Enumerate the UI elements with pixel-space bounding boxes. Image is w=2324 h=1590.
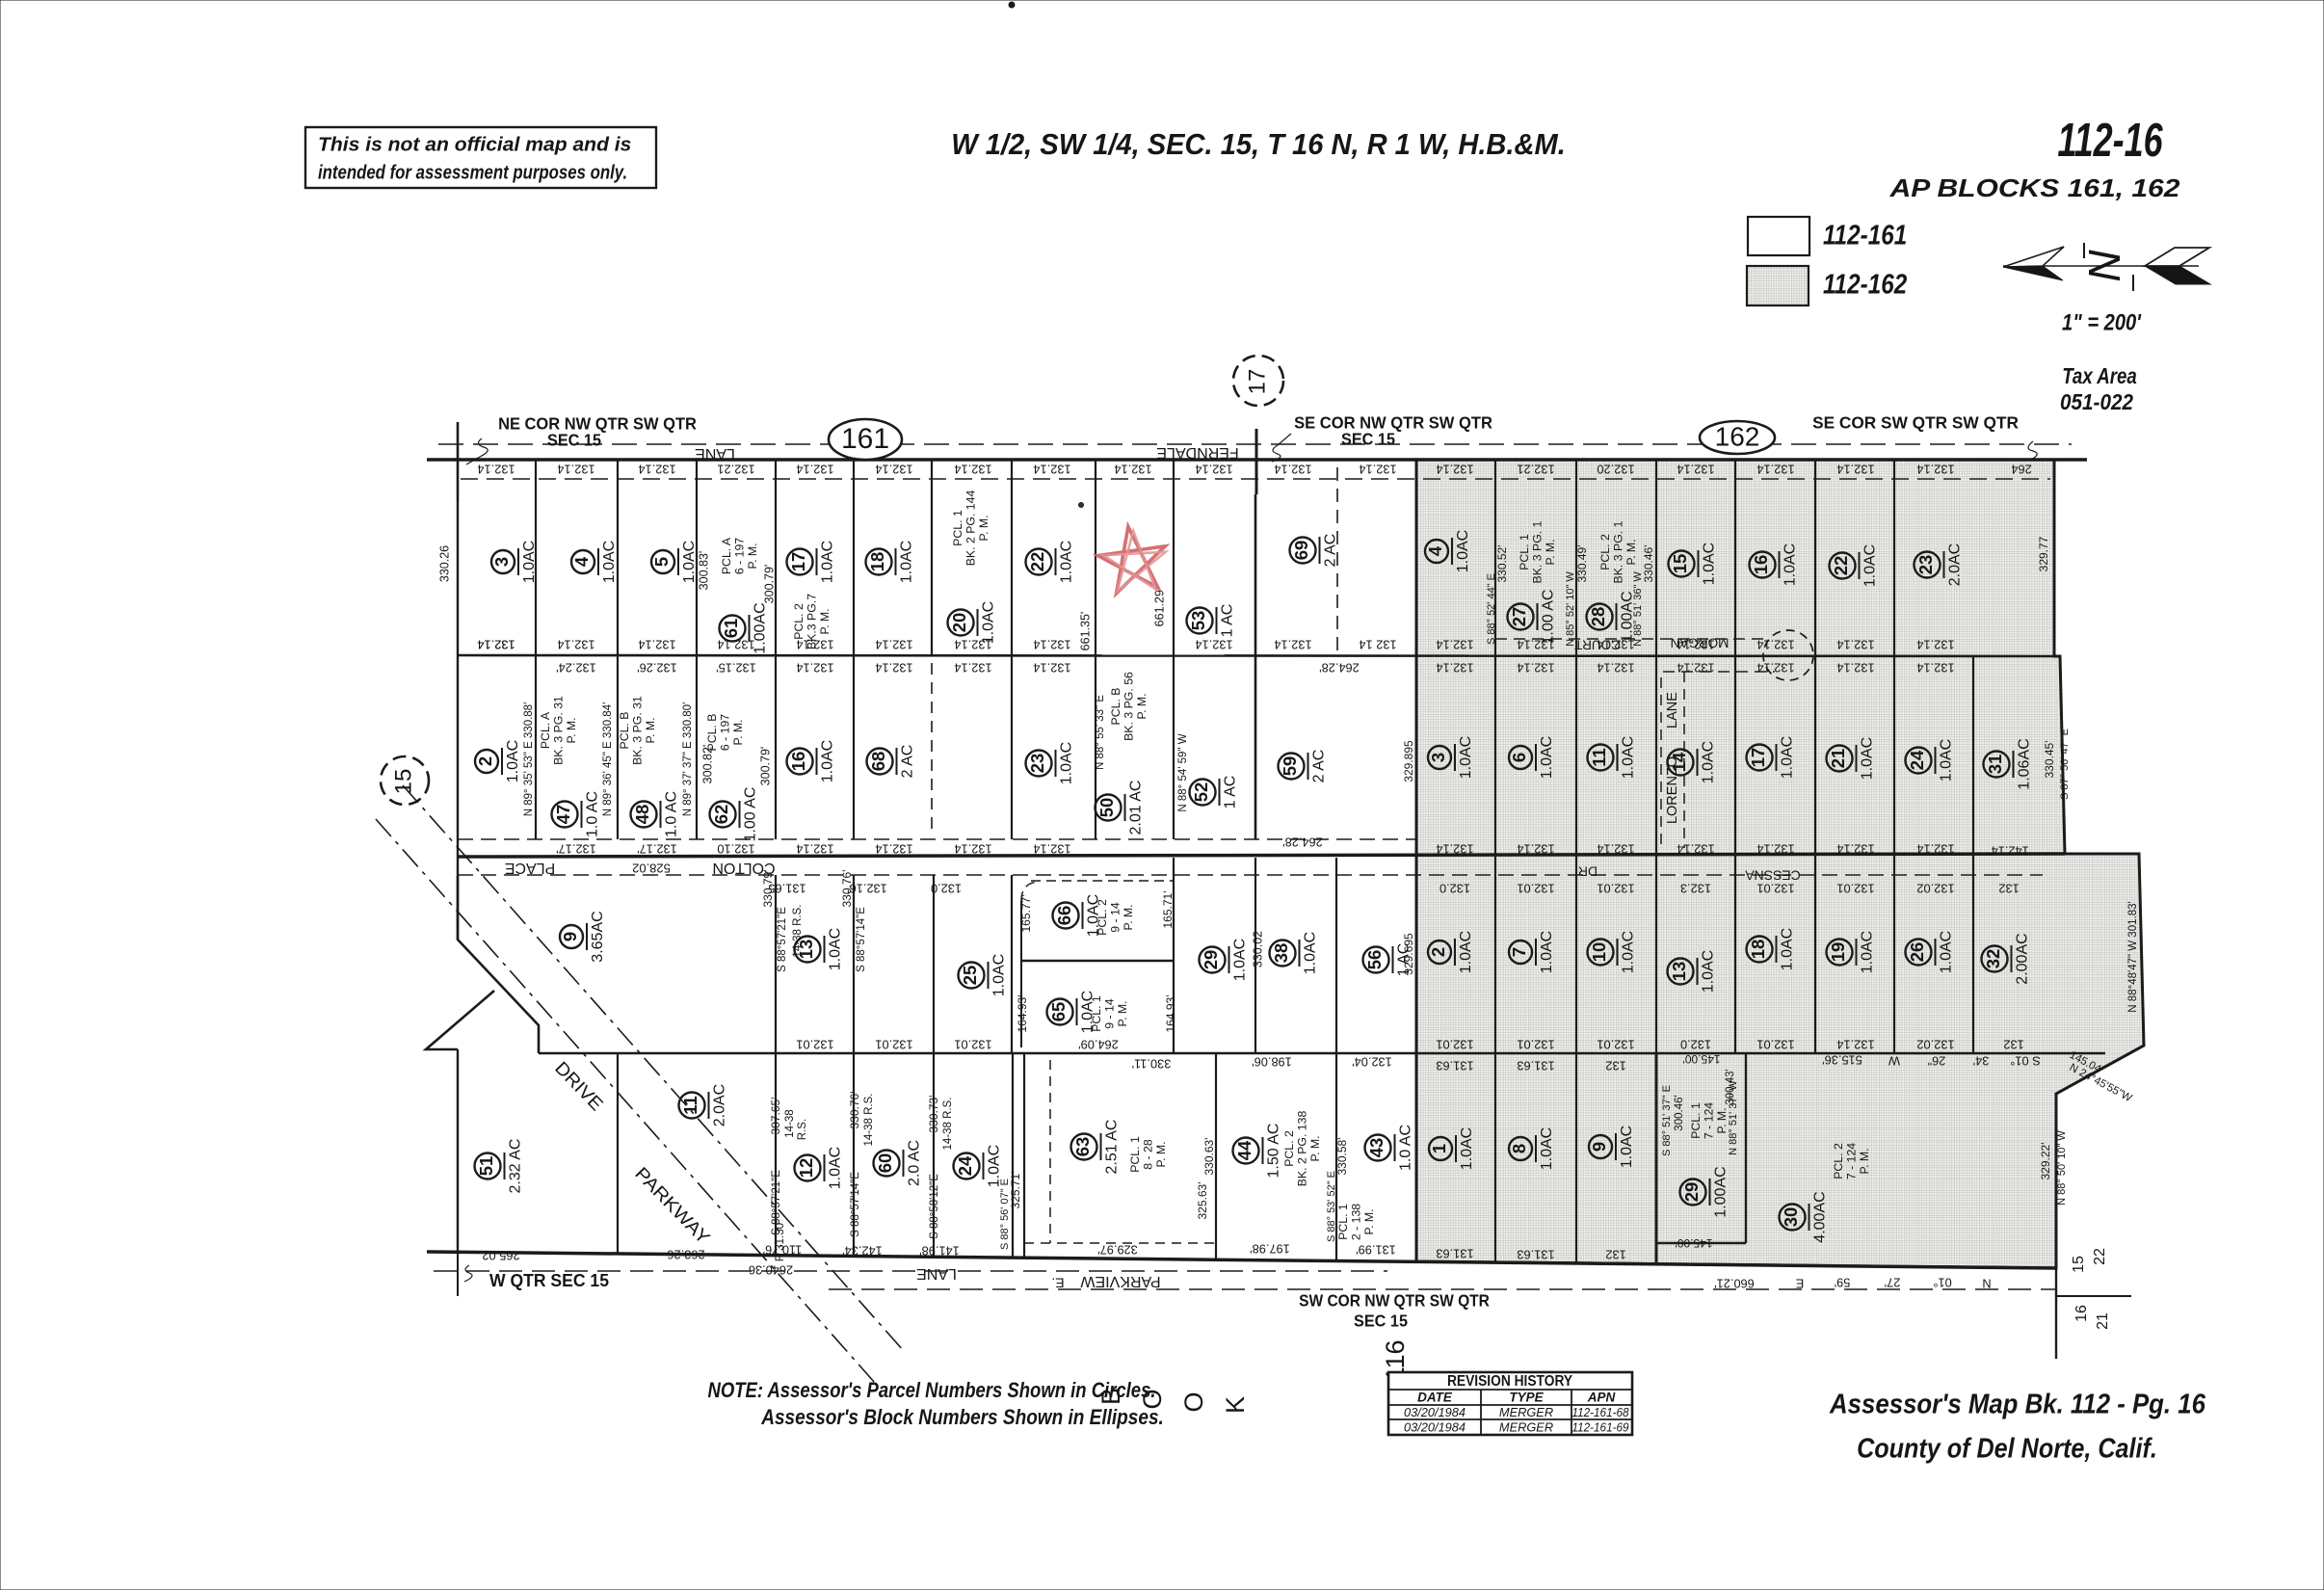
svg-text:330.58': 330.58' — [1335, 1138, 1349, 1176]
svg-text:2.32 AC: 2.32 AC — [508, 1139, 524, 1194]
svg-text:132.14: 132.14 — [1916, 661, 1954, 676]
svg-text:12: 12 — [796, 1158, 816, 1179]
svg-text:329.895: 329.895 — [1402, 740, 1415, 782]
svg-text:27': 27' — [1885, 1276, 1901, 1290]
svg-text:S 88° 56' 07" E: S 88° 56' 07" E — [999, 1179, 1011, 1250]
svg-text:132.14: 132.14 — [954, 463, 991, 477]
svg-text:132.14: 132.14 — [1195, 463, 1232, 477]
svg-text:47: 47 — [553, 805, 573, 825]
svg-text:1.00 AC: 1.00 AC — [1541, 590, 1557, 645]
svg-text:2.01 AC: 2.01 AC — [1128, 781, 1145, 835]
svg-text:325.71': 325.71' — [1009, 1172, 1022, 1209]
svg-text:515.36': 515.36' — [1822, 1053, 1862, 1068]
svg-text:County of Del Norte, Calif.: County of Del Norte, Calif. — [1857, 1432, 2157, 1464]
svg-text:132.10: 132.10 — [717, 842, 754, 857]
svg-text:1.0AC: 1.0AC — [1621, 931, 1637, 973]
svg-text:56: 56 — [1364, 950, 1385, 970]
svg-text:264.28': 264.28' — [1319, 661, 1360, 676]
svg-text:132.14: 132.14 — [1836, 463, 1874, 477]
svg-text:32: 32 — [1983, 949, 2003, 969]
svg-text:264.09': 264.09' — [1078, 1038, 1119, 1052]
svg-text:9: 9 — [1589, 1142, 1609, 1152]
svg-text:132.0: 132.0 — [1439, 882, 1470, 896]
svg-text:145.00': 145.00' — [1676, 1236, 1713, 1250]
svg-text:53: 53 — [1188, 611, 1208, 631]
svg-text:132.14: 132.14 — [796, 842, 833, 857]
svg-text:38: 38 — [1271, 943, 1291, 964]
svg-text:15: 15 — [2071, 1256, 2087, 1273]
svg-text:132.14: 132.14 — [1916, 638, 1954, 652]
svg-text:132.14: 132.14 — [875, 463, 912, 477]
svg-text:60: 60 — [875, 1153, 895, 1174]
svg-text:P. M.: P. M. — [1858, 1148, 1871, 1174]
svg-text:3: 3 — [491, 557, 512, 567]
svg-text:N 88° 55' 33" E: N 88° 55' 33" E — [1095, 695, 1106, 770]
svg-text:P. M.: P. M. — [1122, 904, 1135, 930]
svg-text:132.14: 132.14 — [1033, 463, 1070, 477]
svg-text:26: 26 — [1907, 942, 1927, 963]
svg-text:1.0AC: 1.0AC — [1059, 541, 1075, 583]
svg-text:132.17': 132.17' — [556, 842, 596, 857]
svg-text:59: 59 — [1280, 756, 1300, 777]
svg-text:BK. 2 PG. 144: BK. 2 PG. 144 — [964, 490, 977, 567]
svg-text:6 - 197: 6 - 197 — [718, 714, 731, 751]
svg-text:2: 2 — [1428, 947, 1448, 957]
svg-text:2.0 AC: 2.0 AC — [907, 1140, 923, 1186]
svg-text:P. M.: P. M. — [818, 608, 832, 634]
svg-text:132.14: 132.14 — [1359, 463, 1396, 477]
svg-text:132.14: 132.14 — [477, 463, 515, 477]
svg-text:17: 17 — [788, 552, 808, 572]
svg-text:132.14: 132.14 — [1836, 638, 1874, 652]
svg-text:16: 16 — [2073, 1305, 2090, 1322]
svg-text:AP BLOCKS 161, 162: AP BLOCKS 161, 162 — [1889, 174, 2180, 202]
svg-text:PCL. 1: PCL. 1 — [1518, 534, 1531, 570]
svg-text:051-022: 051-022 — [2060, 389, 2133, 414]
svg-text:BK. 3 PG. 1: BK. 3 PG. 1 — [1530, 520, 1544, 583]
svg-text:29: 29 — [1681, 1182, 1702, 1203]
svg-text:21: 21 — [2095, 1312, 2111, 1330]
svg-text:LANE: LANE — [1665, 692, 1680, 729]
svg-text:SE COR SW QTR SW QTR: SE COR SW QTR SW QTR — [1812, 413, 2019, 433]
svg-text:1.0AC: 1.0AC — [828, 1147, 844, 1189]
svg-text:132.04': 132.04' — [1352, 1055, 1392, 1070]
svg-text:132.14: 132.14 — [557, 638, 594, 652]
svg-text:14: 14 — [1669, 752, 1689, 772]
svg-text:SEC 15: SEC 15 — [1341, 430, 1395, 449]
svg-text:329.22': 329.22' — [2039, 1143, 2052, 1180]
svg-text:132.14: 132.14 — [1033, 661, 1070, 676]
svg-text:14-38 R.S.: 14-38 R.S. — [942, 1098, 954, 1151]
svg-text:6 - 197: 6 - 197 — [732, 538, 746, 574]
svg-text:2: 2 — [475, 756, 495, 766]
svg-text:27: 27 — [1509, 607, 1529, 627]
svg-text:132.14: 132.14 — [1114, 463, 1151, 477]
svg-text:1.0 AC: 1.0 AC — [585, 791, 601, 837]
svg-text:330.46': 330.46' — [1642, 545, 1655, 583]
svg-text:164.93': 164.93' — [1016, 995, 1029, 1033]
svg-text:6: 6 — [1509, 753, 1529, 762]
svg-text:329.695: 329.695 — [1402, 933, 1415, 975]
svg-text:1.0AC: 1.0AC — [820, 740, 836, 782]
svg-text:132.14: 132.14 — [1756, 463, 1794, 477]
svg-text:23: 23 — [1027, 754, 1047, 774]
svg-text:7 - 124: 7 - 124 — [1702, 1102, 1715, 1139]
svg-text:44: 44 — [1234, 1140, 1254, 1160]
svg-text:1.00 AC: 1.00 AC — [743, 787, 759, 842]
svg-text:132.14: 132.14 — [1274, 638, 1311, 652]
svg-text:24: 24 — [955, 1155, 975, 1176]
svg-text:1.0AC: 1.0AC — [1780, 928, 1796, 970]
svg-text:112-16: 112-16 — [2057, 115, 2163, 168]
svg-text:330.76': 330.76' — [848, 1092, 861, 1129]
svg-text:PCL. 2: PCL. 2 — [1832, 1143, 1845, 1179]
svg-text:132.14: 132.14 — [1836, 842, 1874, 857]
svg-text:132.21: 132.21 — [717, 463, 754, 477]
svg-text:132.14: 132.14 — [1756, 661, 1794, 676]
svg-text:15: 15 — [1670, 554, 1690, 574]
svg-text:330.26: 330.26 — [437, 545, 451, 582]
svg-text:1.00AC: 1.00AC — [1713, 1166, 1730, 1217]
svg-text:112-161: 112-161 — [1823, 220, 1907, 252]
svg-text:1.0AC: 1.0AC — [1701, 741, 1717, 783]
svg-text:1.0AC: 1.0AC — [1939, 739, 1955, 782]
svg-text:P. M.: P. M. — [1308, 1135, 1322, 1161]
svg-text:18: 18 — [1748, 940, 1768, 960]
svg-text:132.01: 132.01 — [1756, 882, 1794, 896]
svg-text:N 85° 52' 10" W: N 85° 52' 10" W — [1565, 571, 1576, 647]
svg-text:P. M.: P. M. — [644, 717, 657, 743]
svg-text:2.0AC: 2.0AC — [712, 1084, 728, 1126]
svg-text:132 14: 132 14 — [477, 638, 515, 652]
svg-text:132.14: 132.14 — [638, 463, 675, 477]
svg-text:132.14: 132.14 — [557, 463, 594, 477]
svg-text:131.63: 131.63 — [1436, 1059, 1473, 1073]
svg-text:69: 69 — [1291, 541, 1311, 561]
svg-text:61: 61 — [721, 619, 741, 639]
svg-text:132.20: 132.20 — [1597, 463, 1634, 477]
svg-text:S 88°58'12"E: S 88°58'12"E — [929, 1174, 940, 1239]
svg-text:21: 21 — [1828, 749, 1848, 769]
svg-text:PCL. 1: PCL. 1 — [1689, 1102, 1703, 1139]
svg-text:2640.36: 2640.36 — [749, 1263, 793, 1278]
svg-text:SEC 15: SEC 15 — [1354, 1312, 1408, 1331]
svg-text:03/20/1984: 03/20/1984 — [1404, 1405, 1466, 1419]
svg-text:PLACE: PLACE — [505, 860, 555, 876]
svg-text:11: 11 — [680, 1096, 700, 1115]
svg-text:132.01: 132.01 — [1597, 882, 1634, 896]
svg-text:329.97': 329.97' — [1097, 1243, 1138, 1258]
svg-text:1.0AC: 1.0AC — [981, 601, 997, 644]
svg-text:2 AC: 2 AC — [1311, 750, 1328, 783]
svg-text:132.14: 132.14 — [796, 661, 833, 676]
svg-text:1.0AC: 1.0AC — [820, 541, 836, 583]
svg-text:132.14: 132.14 — [1677, 463, 1714, 477]
svg-text:1.0AC: 1.0AC — [1619, 1126, 1635, 1168]
svg-text:14-38 R.S.: 14-38 R.S. — [792, 905, 804, 958]
svg-text:661.35': 661.35' — [1078, 612, 1092, 651]
svg-text:300.82': 300.82' — [700, 745, 714, 784]
svg-text:330.11': 330.11' — [1132, 1057, 1172, 1072]
svg-text:S 88° 51' 37" E: S 88° 51' 37" E — [1661, 1085, 1673, 1156]
svg-text:1.0AC: 1.0AC — [1539, 736, 1555, 779]
svg-text:330.02: 330.02 — [1251, 931, 1264, 967]
svg-text:PCL. 2: PCL. 2 — [792, 603, 805, 640]
svg-text:132.14: 132.14 — [954, 842, 991, 857]
svg-text:BK. 3 PG. 31: BK. 3 PG. 31 — [630, 696, 644, 765]
svg-text:132.17': 132.17' — [637, 842, 677, 857]
svg-text:W 1/2, SW 1/4, SEC. 15, T 16 N: W 1/2, SW 1/4, SEC. 15, T 16 N, R 1 W, H… — [951, 128, 1566, 161]
svg-text:BK. 3 PG. 31: BK. 3 PG. 31 — [551, 696, 565, 765]
svg-text:25: 25 — [960, 966, 980, 986]
svg-text:132.21: 132.21 — [1517, 463, 1554, 477]
svg-text:1.0AC: 1.0AC — [505, 740, 521, 782]
svg-text:1.06AC: 1.06AC — [2017, 738, 2033, 789]
svg-text:1.0AC: 1.0AC — [1539, 1127, 1555, 1170]
svg-text:264.28': 264.28' — [1282, 835, 1323, 850]
svg-text:S 88° 52' 44" E: S 88° 52' 44" E — [1486, 573, 1497, 645]
svg-text:1.0AC: 1.0AC — [1059, 742, 1075, 784]
svg-text:17: 17 — [1748, 748, 1768, 768]
svg-text:300.79': 300.79' — [758, 747, 772, 786]
svg-text:141.98': 141.98' — [919, 1244, 960, 1259]
svg-text:132.14: 132.14 — [954, 661, 991, 676]
svg-text:P. M.: P. M. — [746, 543, 759, 569]
svg-text:131.65: 131.65 — [768, 882, 805, 896]
svg-text:1.0AC: 1.0AC — [1303, 932, 1319, 974]
svg-text:112-162: 112-162 — [1823, 269, 1907, 301]
svg-text:132.14: 132.14 — [1756, 638, 1794, 652]
svg-text:65: 65 — [1048, 1002, 1069, 1022]
svg-text:198.06': 198.06' — [1252, 1055, 1292, 1070]
svg-text:165.71': 165.71' — [1161, 891, 1175, 929]
svg-text:263.26: 263.26 — [667, 1248, 704, 1262]
svg-text:1.0AC: 1.0AC — [1539, 931, 1555, 973]
svg-text:132.01: 132.01 — [1836, 882, 1874, 896]
svg-text:132.14: 132.14 — [1274, 463, 1311, 477]
svg-text:01°: 01° — [1933, 1276, 1951, 1290]
svg-text:E.: E. — [1051, 1275, 1064, 1290]
svg-text:8 - 28: 8 - 28 — [1141, 1139, 1154, 1170]
svg-text:132: 132 — [2003, 1038, 2023, 1052]
svg-text:132.14: 132.14 — [875, 638, 912, 652]
svg-text:7 - 124: 7 - 124 — [1844, 1143, 1858, 1179]
svg-text:NOTE: Assessor's Parcel Number: NOTE: Assessor's Parcel Numbers Shown in… — [707, 1379, 1155, 1402]
svg-text:132.01: 132.01 — [1517, 1038, 1554, 1052]
svg-text:132.14: 132.14 — [1597, 842, 1634, 857]
svg-text:20: 20 — [949, 613, 969, 633]
svg-text:3: 3 — [1428, 753, 1448, 762]
svg-text:132.01: 132.01 — [1436, 1038, 1473, 1052]
svg-text:FERNDALE: FERNDALE — [1156, 444, 1238, 461]
svg-text:300.79': 300.79' — [762, 565, 776, 604]
svg-text:O: O — [1179, 1391, 1208, 1412]
svg-text:112-161-68: 112-161-68 — [1571, 1405, 1628, 1419]
svg-text:13: 13 — [1669, 962, 1689, 982]
svg-text:132.14: 132.14 — [1436, 661, 1473, 676]
svg-text:132.14: 132.14 — [1677, 842, 1714, 857]
svg-text:2 - 138: 2 - 138 — [1349, 1204, 1362, 1240]
svg-text:PCL. A: PCL. A — [720, 537, 733, 574]
svg-text:1.50 AC: 1.50 AC — [1266, 1124, 1282, 1179]
svg-text:34': 34' — [1973, 1054, 1990, 1069]
svg-text:132.01: 132.01 — [1597, 1038, 1634, 1052]
svg-text:1.0AC: 1.0AC — [1621, 736, 1637, 779]
svg-text:142.14': 142.14' — [1989, 844, 2029, 859]
svg-text:PCL. 1: PCL. 1 — [1336, 1204, 1350, 1240]
svg-text:15: 15 — [390, 769, 416, 795]
svg-text:PCL. 1: PCL. 1 — [1128, 1136, 1142, 1173]
svg-text:SW COR NW QTR SW QTR: SW COR NW QTR SW QTR — [1299, 1291, 1490, 1311]
svg-text:325.63': 325.63' — [1196, 1182, 1209, 1220]
svg-text:PCL. B: PCL. B — [1109, 688, 1122, 726]
svg-text:1.0AC: 1.0AC — [1862, 544, 1879, 587]
svg-text:BK. 3 PG. 1: BK. 3 PG. 1 — [1611, 520, 1624, 583]
svg-text:132.14: 132.14 — [796, 638, 833, 652]
svg-text:N 89° 35' 53" E 330.88': N 89° 35' 53" E 330.88' — [523, 702, 535, 817]
svg-text:132.3: 132.3 — [1680, 882, 1711, 896]
svg-text:DR.: DR. — [1574, 863, 1598, 879]
svg-text:22: 22 — [1027, 552, 1047, 572]
svg-text:132.14: 132.14 — [796, 463, 833, 477]
svg-text:N 89° 37' 37" E 330.80': N 89° 37' 37" E 330.80' — [682, 702, 694, 817]
svg-text:1 AC: 1 AC — [1223, 776, 1239, 809]
svg-text:24: 24 — [1907, 750, 1927, 770]
svg-text:P. M.: P. M. — [977, 515, 990, 541]
svg-text:22: 22 — [2092, 1248, 2108, 1265]
svg-text:W: W — [1888, 1054, 1900, 1069]
svg-text:16: 16 — [788, 752, 808, 772]
svg-text:660.21': 660.21' — [1714, 1277, 1755, 1291]
svg-text:3.65AC: 3.65AC — [590, 911, 606, 962]
svg-text:APN: APN — [1587, 1391, 1616, 1405]
svg-text:132.14: 132.14 — [1436, 842, 1473, 857]
svg-text:265.02: 265.02 — [482, 1249, 519, 1263]
svg-text:7: 7 — [1509, 947, 1529, 957]
svg-text:8: 8 — [1509, 1144, 1529, 1153]
svg-text:132.14: 132.14 — [1597, 638, 1634, 652]
svg-text:22: 22 — [1831, 556, 1851, 576]
svg-text:48: 48 — [632, 805, 652, 825]
svg-text:S 01°: S 01° — [2010, 1054, 2040, 1069]
svg-text:132.26': 132.26' — [637, 661, 677, 676]
svg-text:CESSNA: CESSNA — [1745, 867, 1801, 883]
svg-text:S 88°57'14"E: S 88°57'14"E — [856, 907, 867, 972]
svg-text:2.0AC: 2.0AC — [1947, 543, 1964, 586]
svg-text:BK. 2 PG. 138: BK. 2 PG. 138 — [1295, 1111, 1308, 1187]
svg-text:132.02: 132.02 — [1916, 882, 1954, 896]
svg-text:1.0AC: 1.0AC — [601, 541, 618, 583]
svg-text:LANE: LANE — [916, 1265, 957, 1282]
svg-text:REVISION HISTORY: REVISION HISTORY — [1447, 1373, 1572, 1390]
svg-text:300.43': 300.43' — [1725, 1069, 1736, 1104]
svg-text:N 89° 36' 45" E 330.84': N 89° 36' 45" E 330.84' — [602, 702, 614, 817]
svg-text:132.0: 132.0 — [1680, 1038, 1711, 1052]
svg-text:9: 9 — [560, 932, 580, 941]
svg-text:P. M.: P. M. — [1116, 1000, 1129, 1026]
svg-text:132.14: 132.14 — [1677, 661, 1714, 676]
svg-text:307.65': 307.65' — [769, 1098, 782, 1135]
svg-text:S 88° 53' 52" E: S 88° 53' 52" E — [1326, 1171, 1337, 1242]
svg-text:132.15': 132.15' — [716, 661, 756, 676]
svg-text:330.73': 330.73' — [927, 1096, 940, 1133]
svg-text:2 AC: 2 AC — [900, 745, 916, 779]
svg-text:63: 63 — [1072, 1137, 1093, 1157]
svg-text:N 88° 51' 36" W: N 88° 51' 36" W — [1632, 571, 1644, 647]
svg-text:132.01: 132.01 — [954, 1038, 991, 1052]
svg-text:132.14: 132.14 — [1436, 463, 1473, 477]
svg-text:MERGER: MERGER — [1499, 1419, 1553, 1434]
svg-text:PCL. B: PCL. B — [618, 712, 631, 750]
svg-text:2.00AC: 2.00AC — [2015, 933, 2031, 984]
svg-text:1.0AC: 1.0AC — [1860, 931, 1876, 973]
svg-text:PARKVIEW: PARKVIEW — [1079, 1273, 1160, 1289]
svg-text:2 AC: 2 AC — [1323, 534, 1339, 568]
svg-text:1.0AC: 1.0AC — [1702, 543, 1718, 585]
svg-text:132.01: 132.01 — [1517, 882, 1554, 896]
svg-text:1.0AC: 1.0AC — [991, 954, 1008, 996]
svg-text:28: 28 — [1588, 607, 1608, 627]
svg-text:1.0AC: 1.0AC — [1783, 543, 1799, 586]
svg-text:43: 43 — [1366, 1138, 1386, 1158]
svg-text:62: 62 — [711, 805, 731, 825]
svg-text:E: E — [1796, 1277, 1805, 1291]
svg-text:S 88°57'21"E: S 88°57'21"E — [777, 907, 788, 972]
svg-text:MERGER: MERGER — [1499, 1405, 1553, 1419]
svg-text:132.14: 132.14 — [638, 638, 675, 652]
svg-text:P. M.: P. M. — [1544, 539, 1557, 565]
svg-text:29: 29 — [1201, 950, 1221, 970]
svg-text:1.0AC: 1.0AC — [1232, 939, 1249, 981]
svg-text:N: N — [2079, 250, 2129, 282]
svg-text:P. M.: P. M. — [731, 719, 745, 745]
svg-text:165.77': 165.77' — [1019, 895, 1033, 933]
svg-text:132.01: 132.01 — [875, 1038, 912, 1052]
svg-text:132.14: 132.14 — [1436, 638, 1473, 652]
svg-text:131.63: 131.63 — [1517, 1248, 1554, 1262]
svg-text:161: 161 — [841, 423, 889, 455]
svg-text:52: 52 — [1191, 782, 1211, 803]
svg-text:132.14: 132.14 — [875, 661, 912, 676]
svg-text:264: 264 — [2011, 463, 2031, 477]
svg-text:4.00AC: 4.00AC — [1812, 1191, 1829, 1242]
svg-text:N 88° 54' 59" W: N 88° 54' 59" W — [1177, 733, 1189, 811]
svg-text:132.14: 132.14 — [1195, 638, 1232, 652]
svg-text:132.02: 132.02 — [1916, 1038, 1954, 1052]
svg-text:1.0AC: 1.0AC — [681, 541, 698, 583]
svg-text:intended for assessment purpos: intended for assessment purposes only. — [318, 161, 627, 183]
svg-text:110.76': 110.76' — [763, 1243, 803, 1258]
svg-text:P. M.: P. M. — [1715, 1107, 1729, 1133]
svg-text:132.16': 132.16' — [847, 882, 887, 896]
svg-text:17: 17 — [1244, 369, 1270, 395]
svg-text:23: 23 — [1915, 555, 1936, 575]
svg-text:P. M.: P. M. — [1135, 693, 1149, 719]
svg-text:P. M.: P. M. — [565, 717, 578, 743]
svg-text:300.83': 300.83' — [697, 551, 710, 591]
svg-text:PCL. A: PCL. A — [539, 711, 552, 749]
svg-text:132.24': 132.24' — [556, 661, 596, 676]
svg-text:1: 1 — [1429, 1144, 1449, 1153]
svg-text:PCL. 1: PCL. 1 — [1090, 995, 1103, 1032]
svg-text:132.01: 132.01 — [796, 1038, 833, 1052]
svg-text:132.14: 132.14 — [1033, 638, 1070, 652]
svg-text:197.98': 197.98' — [1250, 1242, 1290, 1257]
svg-text:14-38 R.S.: 14-38 R.S. — [863, 1094, 875, 1147]
svg-text:9 - 14: 9 - 14 — [1108, 902, 1122, 933]
svg-text:131.63: 131.63 — [1436, 1247, 1473, 1261]
svg-text:1.0AC: 1.0AC — [1458, 736, 1474, 779]
